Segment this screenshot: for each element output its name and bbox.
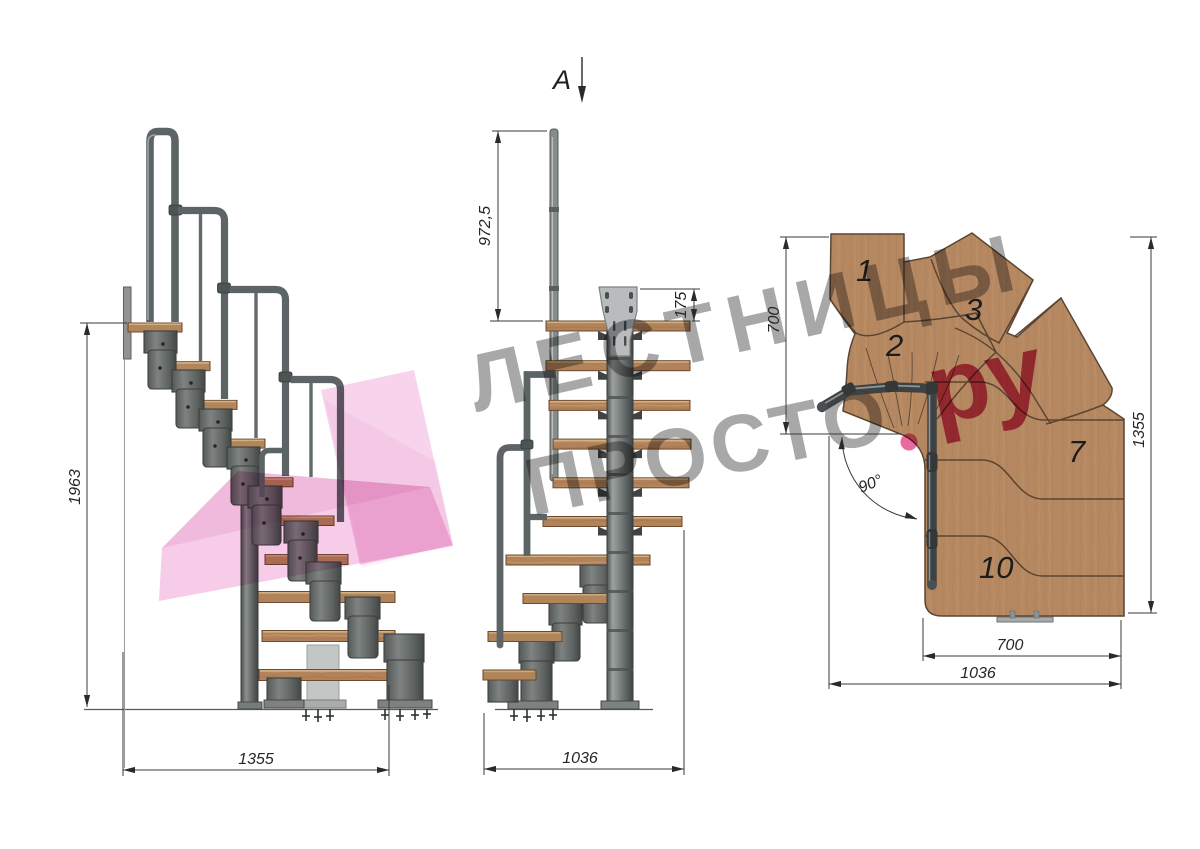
svg-text:10: 10 xyxy=(979,550,1013,585)
svg-text:972,5: 972,5 xyxy=(477,206,494,246)
svg-text:ру: ру xyxy=(917,313,1054,447)
svg-text:1036: 1036 xyxy=(960,665,996,682)
svg-text:175: 175 xyxy=(673,292,690,319)
svg-text:1963: 1963 xyxy=(67,469,84,505)
svg-text:700: 700 xyxy=(997,637,1024,654)
svg-text:1355: 1355 xyxy=(1131,412,1148,448)
svg-text:1036: 1036 xyxy=(562,750,598,767)
svg-text:1355: 1355 xyxy=(238,751,274,768)
svg-text:700: 700 xyxy=(766,307,783,334)
svg-text:A: A xyxy=(551,65,571,95)
svg-text:7: 7 xyxy=(1068,434,1087,469)
